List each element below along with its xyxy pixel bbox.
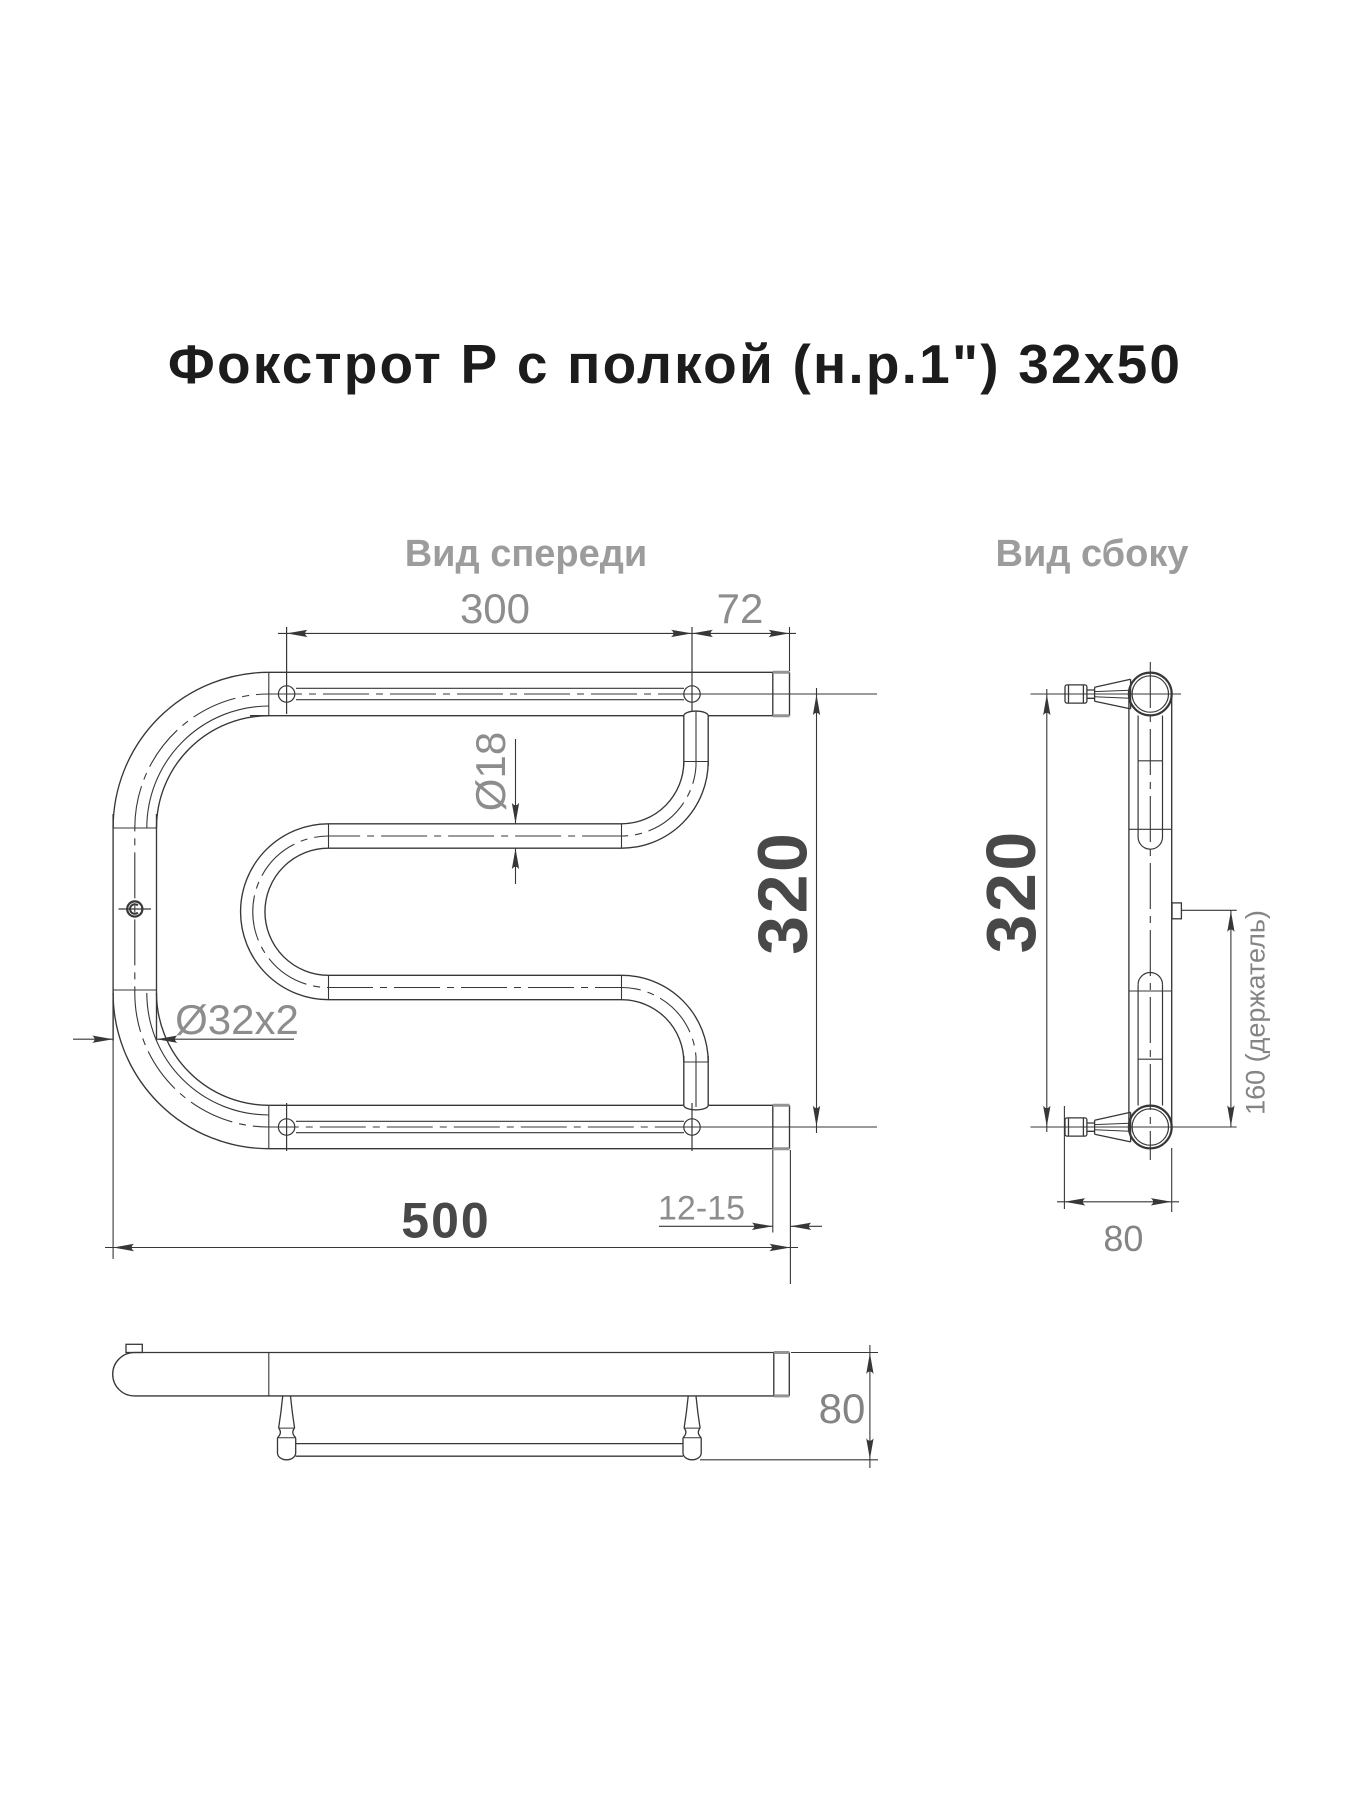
svg-text:80: 80 [819,1385,866,1432]
svg-text:300: 300 [460,585,530,632]
svg-text:72: 72 [717,585,764,632]
svg-text:Ø18: Ø18 [467,732,514,811]
svg-text:12-15: 12-15 [658,1190,745,1228]
svg-text:Вид сбоку: Вид сбоку [996,533,1189,575]
svg-text:500: 500 [401,1193,490,1249]
svg-text:320: 320 [744,831,822,955]
svg-text:Ø32x2: Ø32x2 [175,996,299,1043]
svg-text:Фокстрот Р с полкой (н.р.1") 3: Фокстрот Р с полкой (н.р.1") 32х50 [168,333,1182,395]
svg-text:320: 320 [972,829,1050,953]
svg-text:160 (держатель): 160 (держатель) [1241,910,1271,1115]
svg-text:Вид спереди: Вид спереди [405,533,648,575]
svg-text:80: 80 [1103,1218,1143,1259]
